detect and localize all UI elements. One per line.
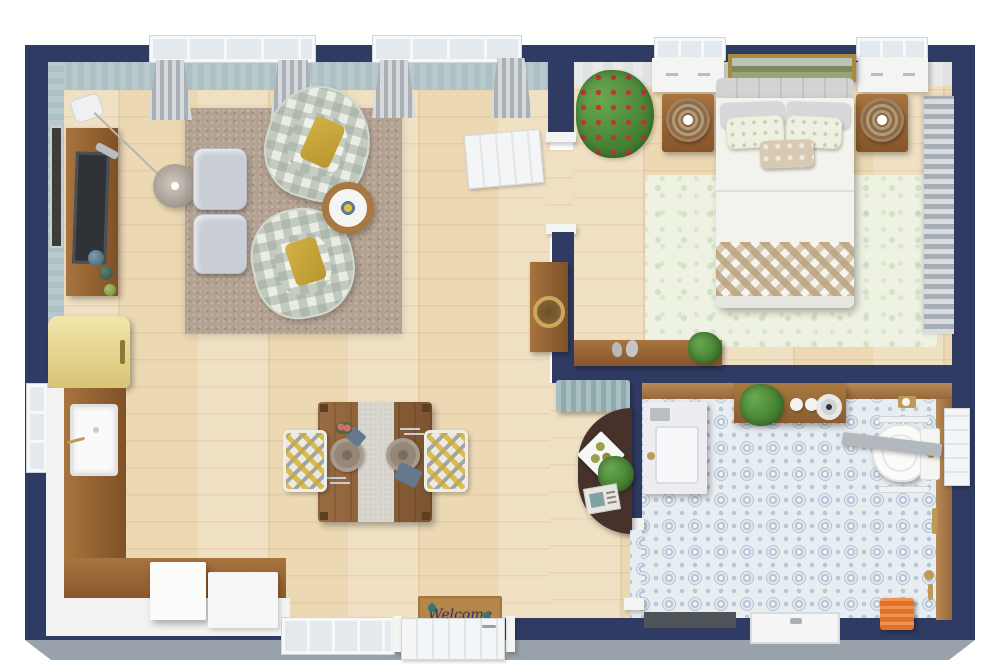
decor-vase-green	[99, 266, 113, 280]
dresser-handle	[903, 73, 915, 76]
bathroom-door-jamb-bottom	[624, 598, 644, 610]
tp-holder	[898, 396, 916, 408]
shower-drain	[790, 618, 802, 624]
grab-bar	[878, 416, 930, 423]
magazine-lines	[606, 491, 615, 495]
rattan-lamp	[860, 98, 904, 142]
cutlery	[326, 477, 346, 479]
kitchen-window	[27, 384, 47, 472]
bathroom-plant	[740, 384, 784, 426]
lamp-bulb	[171, 182, 179, 190]
flower-sprig	[336, 422, 352, 434]
round-side-table	[322, 182, 374, 234]
kitchen-appliance	[208, 572, 278, 628]
living-window-1	[150, 36, 315, 62]
kitchen-island-cube	[150, 562, 206, 620]
fridge-handle	[120, 340, 125, 364]
decor-vase-leaf	[104, 284, 116, 296]
towel-bar	[932, 508, 937, 534]
table-leg	[320, 404, 328, 412]
sink-faucet	[67, 437, 85, 445]
sheet-fold-line	[716, 190, 854, 192]
floor-plan: Welcome	[0, 0, 1000, 666]
gingham-throw	[716, 242, 854, 298]
arc-lamp-globe-shade	[153, 164, 197, 208]
ikat-side-chair	[283, 430, 327, 492]
front-door-jamb	[506, 616, 515, 652]
gold-faucet	[647, 452, 655, 460]
console-table	[530, 262, 568, 352]
bottom-window	[282, 618, 394, 654]
sink-basin	[655, 426, 699, 484]
table-decor	[338, 198, 358, 218]
dresser-handle	[871, 73, 883, 76]
bedroom-right-curtain	[924, 96, 954, 334]
outer-wall-right	[952, 45, 975, 640]
cutlery	[404, 433, 424, 435]
dresser-handle	[698, 73, 710, 76]
shower-tray	[750, 612, 840, 644]
vanity-sink	[643, 402, 707, 494]
farmhouse-sink	[70, 404, 118, 476]
wall-art-frame	[50, 126, 63, 248]
bedroom-window-1	[655, 38, 725, 60]
outer-wall-left	[25, 45, 48, 640]
window-dresser	[858, 58, 928, 92]
bed-footboard	[716, 296, 854, 308]
bedroom-door-jamb-top	[546, 132, 576, 142]
bedroom-door-leaf-open	[464, 129, 544, 189]
table-leg	[422, 404, 430, 412]
table-leg	[320, 512, 328, 520]
bathroom-side-door	[944, 408, 970, 486]
shower-valve	[924, 570, 934, 580]
bathroom-threshold	[630, 530, 642, 598]
retro-fridge	[48, 316, 130, 388]
soap-tray	[650, 408, 670, 421]
teal-striped-cabinet	[556, 380, 630, 412]
ottoman	[193, 148, 247, 210]
decor-vase-blue	[88, 250, 104, 266]
partition-living-bedroom-upper	[548, 45, 574, 137]
ottoman	[193, 214, 247, 274]
table-leg	[422, 512, 430, 520]
orange-slat-stool	[880, 598, 914, 630]
dresser-handle	[666, 73, 678, 76]
woven-tray	[533, 296, 565, 328]
cutlery	[400, 428, 420, 430]
kitchen-counter-face-left	[46, 388, 64, 600]
bedroom-window-2	[857, 38, 927, 60]
doorway-floor	[546, 150, 574, 235]
flowering-plant	[576, 70, 654, 158]
magazine-photo	[589, 492, 605, 508]
console-plant	[688, 332, 722, 364]
vessel-drain	[826, 404, 832, 410]
shower-bar	[928, 584, 933, 600]
front-door	[401, 618, 505, 660]
door-handle	[482, 625, 496, 628]
soap-round	[790, 398, 803, 411]
window-dresser	[652, 58, 724, 92]
tv	[72, 151, 110, 264]
cutlery	[330, 482, 350, 484]
grab-bar	[878, 486, 930, 493]
sink-drain	[93, 427, 99, 433]
rattan-lamp	[666, 98, 710, 142]
ikat-side-chair	[424, 430, 468, 492]
shower-bench-dark	[644, 612, 736, 628]
vessel-bowl	[816, 394, 842, 420]
lumbar-pillow	[760, 139, 815, 169]
tp-roll	[902, 398, 910, 406]
cookie	[594, 440, 607, 453]
